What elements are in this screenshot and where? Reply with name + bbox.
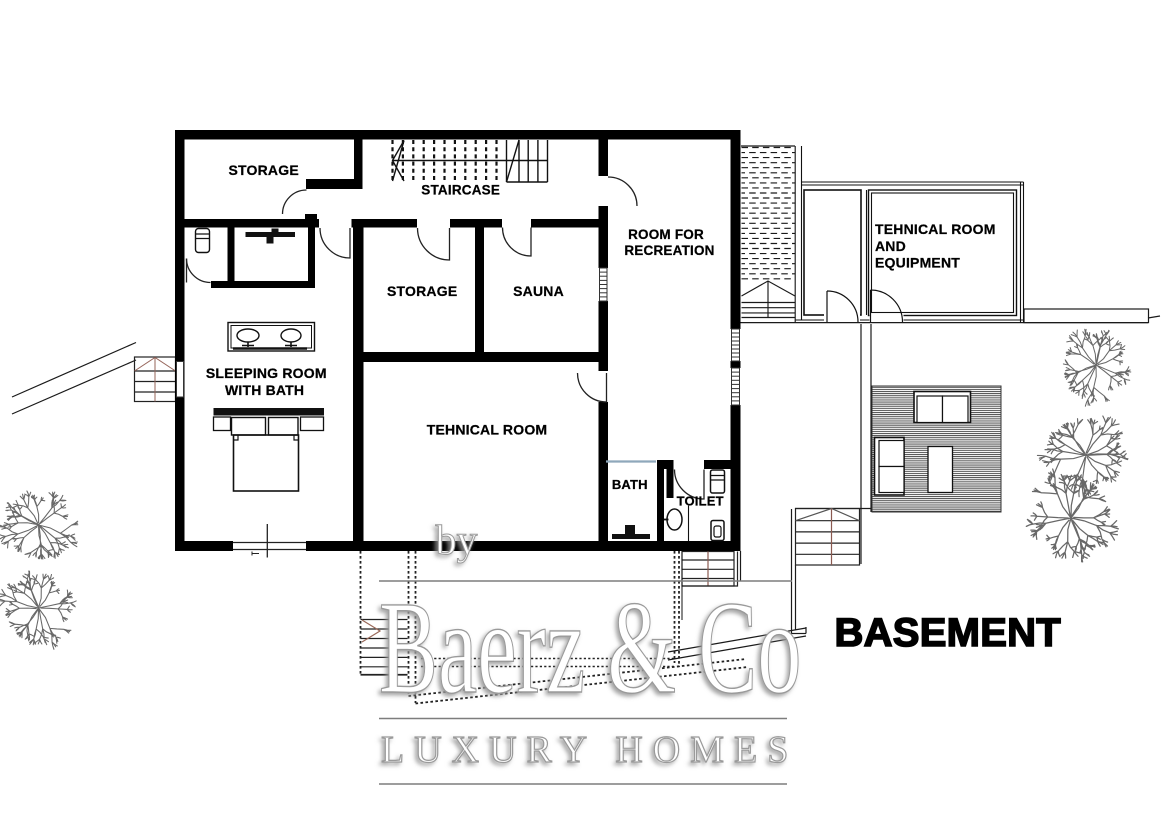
svg-text:ROOM FOR: ROOM FOR (628, 227, 704, 242)
svg-text:STORAGE: STORAGE (229, 162, 299, 178)
svg-text:TEHNICAL ROOM: TEHNICAL ROOM (875, 221, 996, 237)
svg-text:BATH: BATH (612, 477, 648, 492)
svg-text:STAIRCASE: STAIRCASE (421, 183, 500, 198)
svg-text:SAUNA: SAUNA (513, 283, 564, 299)
svg-text:EQUIPMENT: EQUIPMENT (875, 255, 960, 271)
svg-text:TEHNICAL ROOM: TEHNICAL ROOM (427, 422, 548, 438)
svg-text:STORAGE: STORAGE (387, 283, 457, 299)
svg-text:SLEEPING ROOM: SLEEPING ROOM (206, 365, 327, 381)
svg-text:by: by (436, 518, 478, 564)
svg-text:BASEMENT: BASEMENT (835, 611, 1061, 655)
svg-text:Baerz & Co: Baerz & Co (379, 574, 801, 721)
svg-text:AND: AND (875, 238, 906, 254)
svg-text:RECREATION: RECREATION (624, 243, 714, 258)
svg-text:WITH BATH: WITH BATH (225, 382, 304, 398)
svg-text:TOILET: TOILET (677, 494, 724, 509)
svg-text:LUXURY HOMES: LUXURY HOMES (381, 729, 798, 771)
